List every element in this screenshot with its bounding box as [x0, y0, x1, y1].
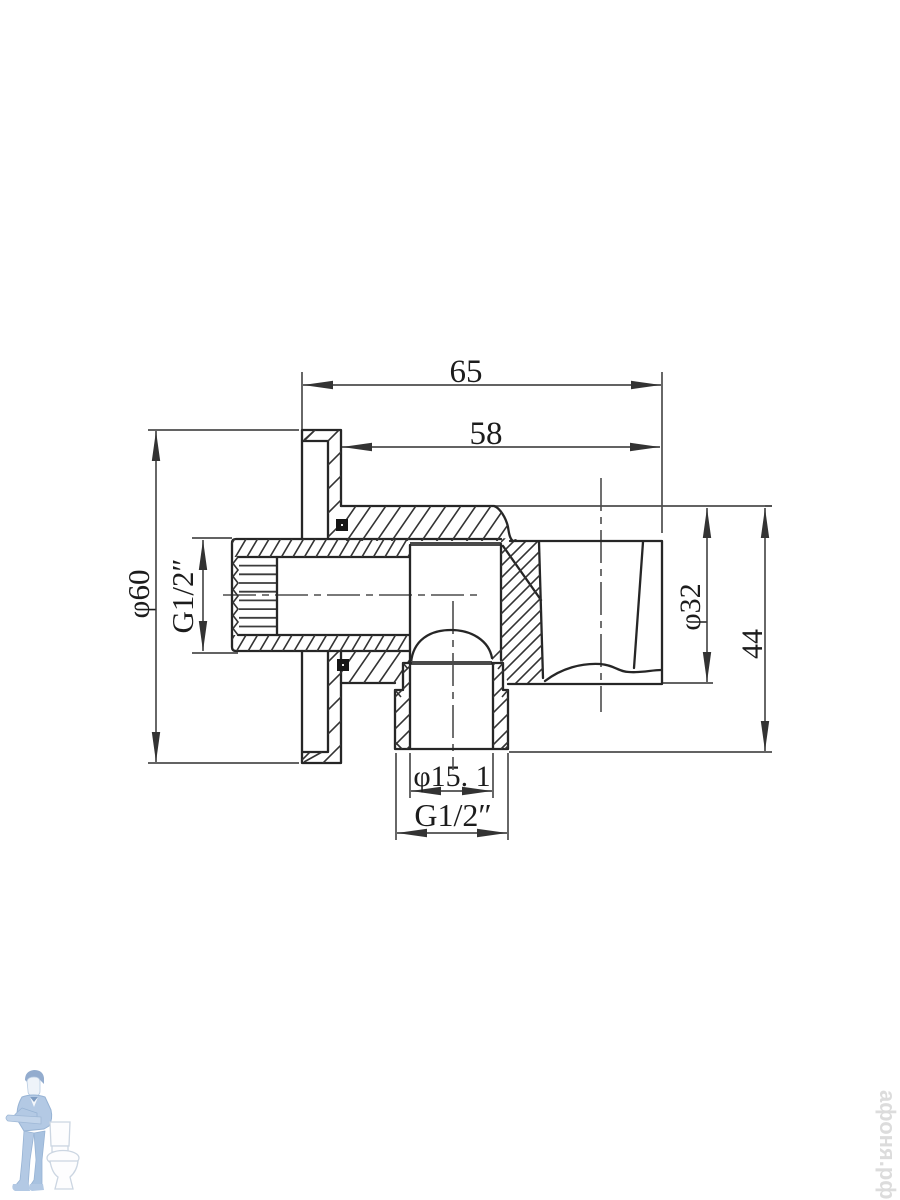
- svg-text:G1/2″: G1/2″: [165, 559, 200, 634]
- svg-text:φ15. 1: φ15. 1: [413, 760, 490, 793]
- svg-text:афоня.рф: афоня.рф: [875, 1090, 900, 1200]
- svg-text:φ60: φ60: [121, 570, 156, 619]
- svg-text:G1/2″: G1/2″: [414, 797, 491, 833]
- svg-text:65: 65: [450, 354, 483, 390]
- svg-text:φ32: φ32: [674, 583, 707, 630]
- svg-text:58: 58: [470, 416, 503, 452]
- svg-text:44: 44: [736, 629, 769, 659]
